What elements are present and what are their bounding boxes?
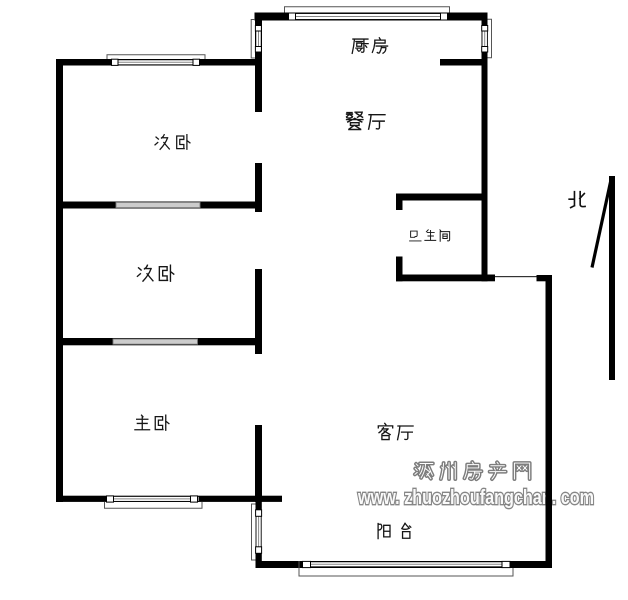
svg-text:www. zhuozhoufangchan. com: www. zhuozhoufangchan. com xyxy=(357,486,594,509)
